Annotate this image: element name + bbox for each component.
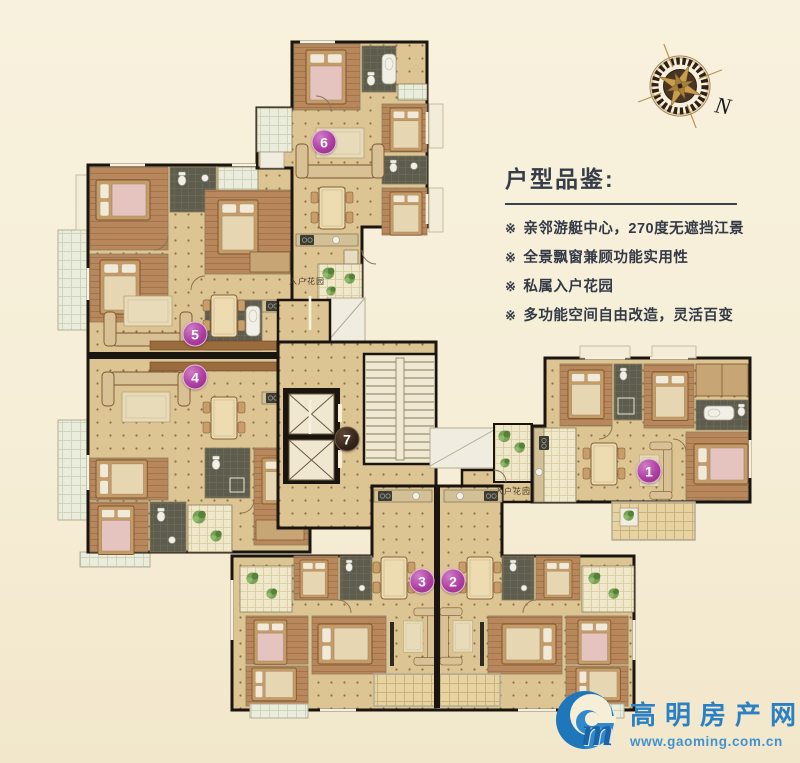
floor-plan-svg: N xyxy=(0,0,800,763)
entry-garden-label: 入户花园 xyxy=(495,486,531,497)
feature-item: ※ 全景飘窗兼顾功能实用性 xyxy=(505,249,785,267)
compass-north-label: N xyxy=(712,92,734,120)
unit-marker-2[interactable]: 2 xyxy=(441,569,466,594)
unit-marker-4[interactable]: 4 xyxy=(183,365,208,390)
logo-monogram: m xyxy=(582,708,613,755)
left-wing xyxy=(58,165,310,567)
info-panel: 户型品鉴: ※ 亲邻游艇中心，270度无遮挡江景 ※ 全景飘窗兼顾功能实用性 ※… xyxy=(505,160,785,337)
ac-platform xyxy=(327,298,365,342)
site-name: 高明房产网 xyxy=(630,695,800,732)
unit-marker-6[interactable]: 6 xyxy=(312,130,337,155)
unit-marker-1[interactable]: 1 xyxy=(637,459,662,484)
unit-marker-3[interactable]: 3 xyxy=(410,569,435,594)
feature-text: 亲邻游艇中心，270度无遮挡江景 xyxy=(523,220,744,238)
entry-garden-label: 入户花园 xyxy=(289,276,325,287)
bullet-icon: ※ xyxy=(505,308,516,324)
compass-icon: N xyxy=(596,2,764,170)
feature-item: ※ 多功能空间自由改造，灵活百变 xyxy=(505,307,785,325)
right-wing xyxy=(532,346,750,540)
bullet-icon: ※ xyxy=(505,221,516,237)
bullet-icon: ※ xyxy=(505,250,516,266)
site-url: www.gaoming.com.cn xyxy=(630,734,800,749)
bullet-icon: ※ xyxy=(505,279,516,295)
watermark[interactable]: m 高明房产网 www.gaoming.com.cn xyxy=(552,684,800,760)
feature-text: 多功能空间自由改造，灵活百变 xyxy=(523,307,733,325)
feature-text: 全景飘窗兼顾功能实用性 xyxy=(523,249,688,267)
page-title: 户型品鉴: xyxy=(505,160,785,194)
feature-item: ※ 亲邻游艇中心，270度无遮挡江景 xyxy=(505,220,785,238)
unit-marker-5[interactable]: 5 xyxy=(183,322,208,347)
feature-text: 私属入户花园 xyxy=(523,278,613,296)
unit-marker-7[interactable]: 7 xyxy=(335,427,360,452)
feature-item: ※ 私属入户花园 xyxy=(505,278,785,296)
gaoming-logo-icon: m xyxy=(552,686,628,758)
title-underline xyxy=(505,203,737,205)
floor-plan-page: N 户型品鉴: ※ 亲邻游艇中心，270度无遮挡江景 ※ 全景飘窗兼顾功能实用性… xyxy=(0,0,800,763)
